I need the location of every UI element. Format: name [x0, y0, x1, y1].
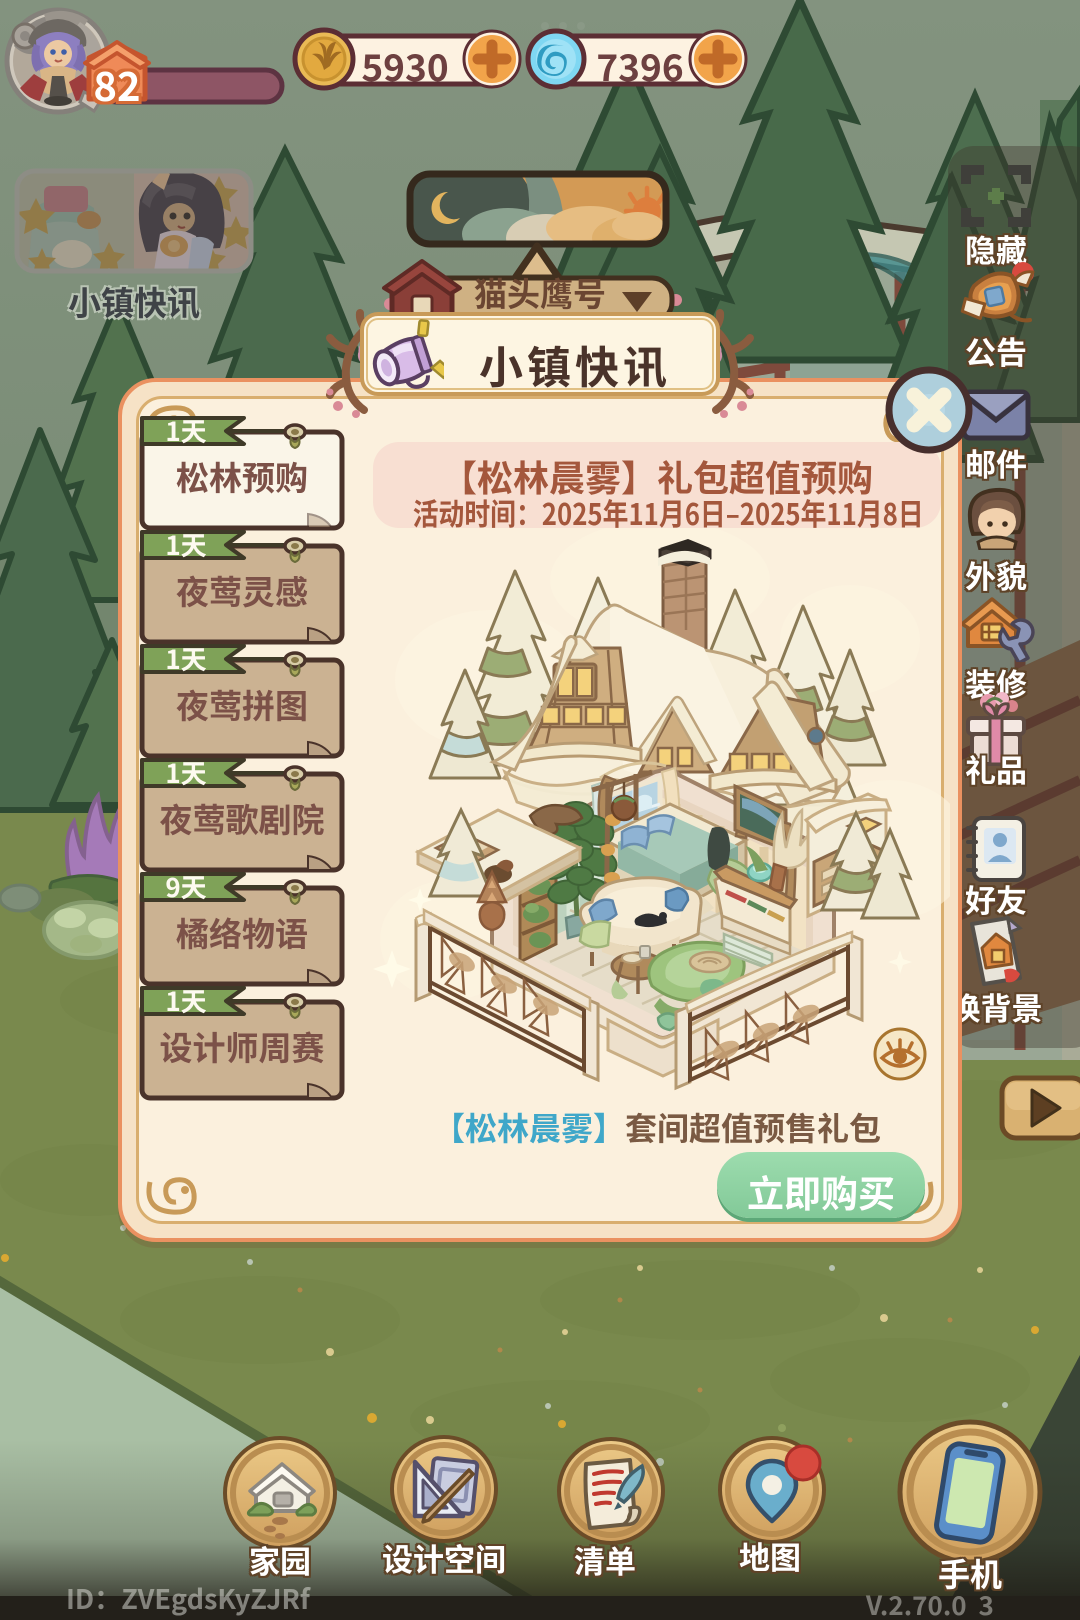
svg-text:1天: 1天 — [165, 984, 206, 1019]
svg-text:1天: 1天 — [165, 528, 206, 563]
svg-text:夜莺歌剧院: 夜莺歌剧院 — [160, 794, 325, 842]
svg-text:1天: 1天 — [165, 756, 206, 791]
svg-text:1天: 1天 — [165, 414, 206, 449]
svg-text:设计师周赛: 设计师周赛 — [160, 1022, 325, 1070]
svg-text:橘络物语: 橘络物语 — [176, 908, 308, 956]
svg-text:1天: 1天 — [165, 642, 206, 677]
svg-text:松林预购: 松林预购 — [176, 452, 308, 500]
svg-text:9天: 9天 — [165, 870, 206, 905]
svg-text:夜莺灵感: 夜莺灵感 — [176, 566, 308, 614]
svg-text:夜莺拼图: 夜莺拼图 — [176, 680, 308, 728]
